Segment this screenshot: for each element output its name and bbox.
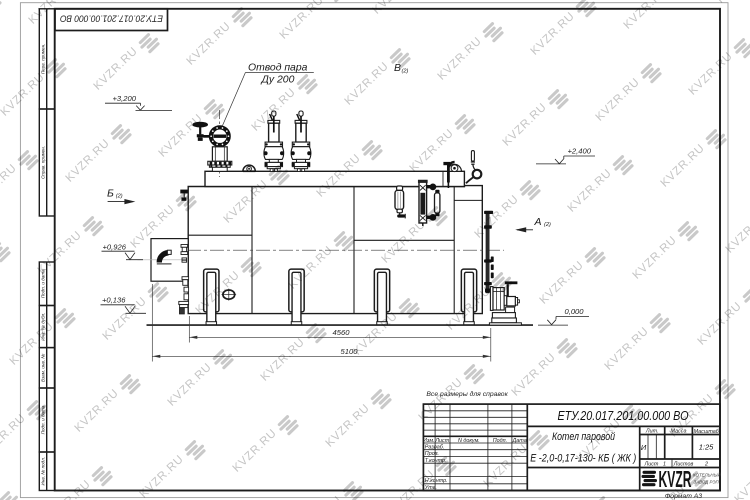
svg-text:Перв. примен.: Перв. примен. xyxy=(41,44,46,75)
svg-text:Подп.: Подп. xyxy=(493,438,507,444)
svg-text:Разраб.: Разраб. xyxy=(425,444,445,450)
svg-text:+3,200: +3,200 xyxy=(113,94,137,103)
svg-text:В: В xyxy=(394,62,401,74)
svg-text:ЕТУ.20.017.201.00.000 ВО: ЕТУ.20.017.201.00.000 ВО xyxy=(558,408,689,423)
svg-text:2: 2 xyxy=(704,462,708,468)
svg-text:0,000: 0,000 xyxy=(565,307,585,316)
svg-text:+0,926: +0,926 xyxy=(103,243,127,252)
svg-text:Взам. инв. №: Взам. инв. № xyxy=(41,354,46,382)
svg-text:N докум.: N докум. xyxy=(458,438,480,444)
svg-text:Лист: Лист xyxy=(434,438,449,444)
svg-text:Лист: Лист xyxy=(644,462,659,468)
svg-text:Лит.: Лит. xyxy=(645,429,659,435)
svg-text:Инв. № подл.: Инв. № подл. xyxy=(41,457,46,486)
svg-text:(2): (2) xyxy=(544,222,551,228)
svg-text:Отвод пара: Отвод пара xyxy=(248,63,308,74)
svg-text:4560: 4560 xyxy=(333,328,351,337)
svg-text:Б: Б xyxy=(107,187,114,199)
svg-text:Масштаб: Масштаб xyxy=(694,429,720,435)
svg-text:1:25: 1:25 xyxy=(699,442,714,451)
svg-text:Ду 200: Ду 200 xyxy=(261,75,295,86)
svg-text:А: А xyxy=(534,216,542,228)
svg-text:ЕТУ.20.017.201.00.000 ВО: ЕТУ.20.017.201.00.000 ВО xyxy=(59,12,163,23)
svg-text:(2): (2) xyxy=(402,69,409,75)
svg-text:+2,400: +2,400 xyxy=(568,146,592,155)
svg-text:И: И xyxy=(641,443,647,452)
svg-text:+0,136: +0,136 xyxy=(102,296,126,305)
svg-text:(2): (2) xyxy=(116,193,123,199)
svg-text:Изм.: Изм. xyxy=(423,438,435,444)
svg-text:Дата: Дата xyxy=(511,438,526,444)
svg-text:Пров.: Пров. xyxy=(425,451,439,457)
svg-text:Справ. примен.: Справ. примен. xyxy=(41,146,46,179)
